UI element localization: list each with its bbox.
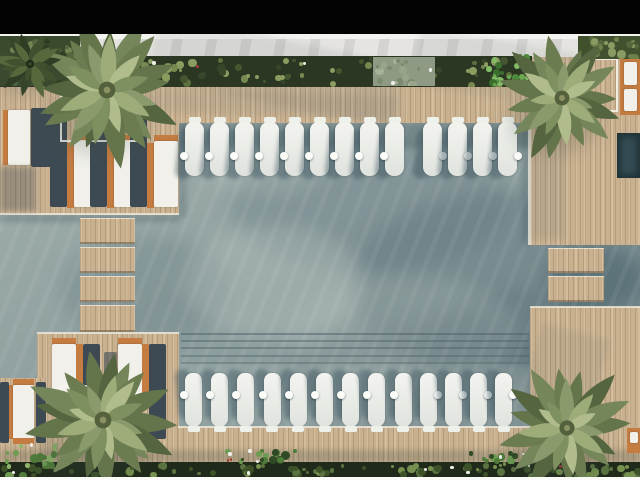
pool-lounger-headrest bbox=[448, 426, 460, 432]
leaf bbox=[198, 73, 205, 80]
leaf bbox=[235, 64, 242, 71]
pool-lounger-drink-float bbox=[390, 391, 398, 399]
leaf bbox=[210, 470, 216, 476]
leaf bbox=[228, 452, 231, 455]
leaf bbox=[481, 65, 485, 69]
leaf bbox=[365, 62, 372, 69]
planting-bed bbox=[373, 57, 435, 86]
leaf bbox=[377, 78, 383, 84]
deck-step bbox=[80, 247, 135, 273]
pool-lounger-drink-float bbox=[205, 152, 213, 160]
leaf bbox=[468, 82, 475, 87]
pool-step-line bbox=[181, 355, 529, 357]
planting-bed bbox=[225, 448, 300, 464]
leaf bbox=[6, 451, 9, 454]
pool-lounger-headrest bbox=[389, 117, 401, 123]
pool-lounger-headrest bbox=[266, 426, 278, 432]
leaf bbox=[466, 471, 469, 474]
pool-lounger-drink-float bbox=[330, 152, 338, 160]
leaf bbox=[387, 66, 392, 71]
leaf bbox=[292, 59, 296, 63]
leaf bbox=[399, 66, 407, 74]
pool-lounger-headrest bbox=[427, 117, 439, 123]
leaf bbox=[230, 458, 233, 461]
leaf bbox=[196, 65, 199, 68]
palm-crown-highlight bbox=[28, 62, 31, 65]
palm-tree bbox=[19, 336, 187, 480]
pool-lounger-headrest bbox=[423, 426, 435, 432]
leaf bbox=[359, 59, 364, 64]
leaf bbox=[306, 471, 309, 474]
pool-lounger-drink-float bbox=[380, 152, 388, 160]
deck-step bbox=[548, 276, 604, 302]
leaf bbox=[189, 467, 193, 471]
pool-lounger-drink-float bbox=[311, 391, 319, 399]
deck-step bbox=[80, 276, 135, 302]
leaf bbox=[330, 81, 336, 87]
pool-coping bbox=[530, 306, 640, 308]
leaf bbox=[219, 68, 227, 76]
leaf bbox=[276, 65, 281, 70]
pool-lounger-headrest bbox=[452, 117, 464, 123]
leaf bbox=[5, 459, 10, 464]
leaf bbox=[197, 472, 201, 476]
leaf bbox=[482, 457, 486, 461]
pool-lounger-drink-float bbox=[285, 391, 293, 399]
leaf bbox=[410, 81, 417, 86]
leaf bbox=[429, 68, 433, 72]
leaf bbox=[256, 451, 261, 456]
pool-lounger-headrest bbox=[214, 117, 226, 123]
leaf bbox=[469, 451, 474, 456]
pool-lounger-headrest bbox=[240, 426, 252, 432]
shrub-palm-tree bbox=[0, 22, 72, 106]
pool-lounger bbox=[385, 122, 404, 176]
pool-lounger-headrest bbox=[214, 426, 226, 432]
palm-crown-highlight bbox=[559, 95, 565, 101]
palm-crown-highlight bbox=[104, 87, 111, 94]
pool-lounger-headrest bbox=[364, 117, 376, 123]
pool-lounger bbox=[470, 373, 487, 427]
leaf bbox=[413, 463, 419, 469]
pool-lounger-headrest bbox=[264, 117, 276, 123]
pool-lounger-headrest bbox=[314, 117, 326, 123]
pool-lounger-headrest bbox=[473, 426, 485, 432]
leaf bbox=[283, 58, 289, 64]
pool-step-line bbox=[181, 347, 529, 349]
leaf bbox=[288, 74, 292, 78]
leaf bbox=[277, 457, 283, 463]
pool-step-line bbox=[181, 333, 529, 335]
leaf bbox=[260, 458, 264, 462]
leaf bbox=[269, 456, 277, 464]
pool-coping bbox=[0, 213, 179, 215]
leaf bbox=[472, 61, 477, 66]
pool-lounger bbox=[316, 373, 333, 427]
palm-crown-highlight bbox=[100, 417, 107, 424]
leaf bbox=[424, 468, 427, 471]
leaf bbox=[272, 449, 279, 456]
leaf bbox=[483, 472, 488, 477]
pool-lounger-headrest bbox=[397, 426, 409, 432]
leaf bbox=[391, 81, 395, 85]
pool-lounger bbox=[185, 373, 202, 427]
pool-lounger bbox=[445, 373, 462, 427]
pool-lounger-headrest bbox=[289, 117, 301, 123]
leaf bbox=[275, 75, 282, 82]
leaf bbox=[256, 460, 259, 463]
pool-lounger-headrest bbox=[239, 117, 251, 123]
pool-lounger bbox=[368, 373, 385, 427]
pool-lounger-drink-float bbox=[255, 152, 263, 160]
pool-lounger bbox=[264, 373, 281, 427]
leaf bbox=[475, 74, 478, 77]
leaf bbox=[483, 463, 489, 469]
leaf bbox=[450, 466, 453, 469]
leaf bbox=[255, 75, 259, 79]
leaf bbox=[303, 62, 306, 65]
leaf bbox=[7, 464, 11, 468]
leaf bbox=[248, 449, 252, 453]
scene-layer bbox=[0, 0, 640, 480]
leaf bbox=[241, 458, 244, 461]
leaf bbox=[396, 59, 399, 62]
leaf bbox=[261, 464, 265, 468]
deck-step bbox=[548, 248, 604, 273]
leaf bbox=[476, 468, 479, 471]
pool-step-line bbox=[181, 362, 529, 364]
leaf bbox=[417, 67, 420, 70]
leaf bbox=[246, 74, 250, 78]
top-letterbox bbox=[0, 0, 640, 34]
pool-lounger-drink-float bbox=[230, 152, 238, 160]
leaf bbox=[330, 468, 334, 472]
pool-lounger-headrest bbox=[292, 426, 304, 432]
pool-lounger bbox=[395, 373, 412, 427]
leaf bbox=[288, 466, 294, 472]
deck-step bbox=[80, 218, 135, 244]
pool-lounger-headrest bbox=[371, 426, 383, 432]
pool-lounger-drink-float bbox=[259, 391, 267, 399]
leaf bbox=[227, 459, 230, 462]
deck-step bbox=[80, 305, 135, 332]
pool-lounger-drink-float bbox=[305, 152, 313, 160]
palm-tree bbox=[488, 24, 636, 172]
leaf bbox=[218, 58, 224, 64]
pool-aerial-render bbox=[0, 0, 640, 480]
pool-lounger bbox=[237, 373, 254, 427]
pool-coping bbox=[37, 332, 179, 334]
pool-lounger-drink-float bbox=[355, 152, 363, 160]
leaf bbox=[436, 67, 442, 73]
leaf bbox=[428, 466, 433, 471]
leaf bbox=[341, 464, 345, 468]
leaf bbox=[391, 465, 394, 468]
pool-lounger-headrest bbox=[339, 117, 351, 123]
pool-lounger-drink-float bbox=[280, 152, 288, 160]
leaf bbox=[404, 60, 408, 64]
pool-lounger bbox=[420, 373, 437, 427]
leaf bbox=[12, 471, 15, 474]
leaf bbox=[330, 68, 335, 73]
leaf bbox=[376, 65, 379, 68]
pool-lounger-headrest bbox=[188, 426, 200, 432]
leaf bbox=[302, 468, 305, 471]
leaf bbox=[362, 466, 367, 471]
leaf bbox=[434, 465, 442, 473]
leaf bbox=[300, 73, 304, 77]
palm-tree bbox=[491, 352, 640, 480]
lounger-shadow bbox=[0, 382, 9, 443]
pool-lounger-headrest bbox=[319, 426, 331, 432]
leaf bbox=[336, 68, 342, 74]
pool-lounger bbox=[290, 373, 307, 427]
pool-lounger bbox=[342, 373, 359, 427]
pool-lounger-headrest bbox=[477, 117, 489, 123]
pool-lounger-headrest bbox=[345, 426, 357, 432]
leaf bbox=[381, 62, 387, 68]
palm-crown-highlight bbox=[564, 425, 570, 431]
leaf bbox=[263, 80, 266, 83]
pool-lounger bbox=[211, 373, 228, 427]
leaf bbox=[281, 80, 285, 84]
leaf bbox=[13, 450, 19, 456]
leaf bbox=[369, 57, 372, 60]
pool-step-line bbox=[181, 340, 529, 342]
leaf bbox=[293, 449, 297, 453]
leaf bbox=[469, 67, 477, 75]
